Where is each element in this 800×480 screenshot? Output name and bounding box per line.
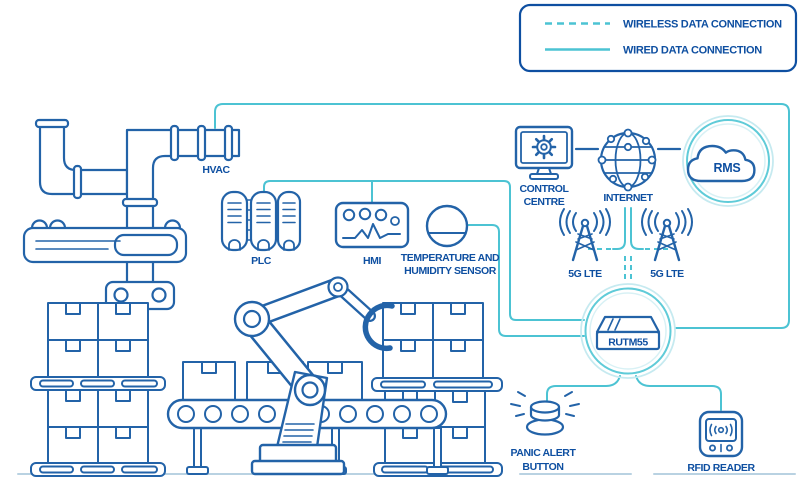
pipe-flange [171,126,178,160]
panic-button-label-2: BUTTON [522,461,563,473]
robot-elbow-joint [329,278,348,297]
temp-sensor-label-1: TEMPERATURE AND [401,252,500,264]
wire-router-to-panic-button [547,376,620,403]
hmi-label: HMI [363,255,382,267]
internet-icon: INTERNET [599,130,681,205]
pipe-cap [36,120,68,127]
wire-internet-split-right [631,208,643,249]
machine-dome [32,221,47,228]
robot-shoulder-joint [235,302,269,336]
control-centre-label-2: CENTRE [524,196,565,208]
legend: WIRELESS DATA CONNECTION WIRED DATA CONN… [520,5,796,71]
wire-internet-split-left [613,208,625,249]
button-dome [531,402,559,413]
pipe-flange [198,126,205,160]
conveyor-boxes [183,362,362,400]
lte-tower-left: 5G LTE [560,209,610,280]
pipe-flange [123,199,157,206]
hvac-pipe-elbow [40,126,127,194]
router-icon: RUTM55 [581,284,675,378]
router-top [597,317,659,332]
temp-humidity-sensor-icon: TEMPERATURE AND HUMIDITY SENSOR [401,206,500,277]
legend-wired-label: WIRED DATA CONNECTION [623,45,762,57]
legend-box [520,5,796,71]
hvac-label: HVAC [202,164,230,176]
plc-icon: PLC [222,192,300,267]
monitor-frame [516,127,572,168]
control-centre-label-1: CONTROL [519,183,569,195]
pipe-flange [225,126,232,160]
rms-icon: RMS [683,116,773,206]
robot-base-joint [295,375,325,405]
left-pallet-stack [31,303,165,476]
wire-router-to-rfid [636,376,721,410]
hmi-icon: HMI [336,203,408,267]
control-centre-icon: CONTROL CENTRE [516,127,598,208]
iot-topology-diagram: WIRELESS DATA CONNECTION WIRED DATA CONN… [0,0,800,480]
plc-label: PLC [251,255,272,267]
router-label: RUTM55 [608,337,648,349]
rfid-reader-label: RFID READER [687,462,755,474]
button-base [527,420,563,435]
robot-base-plate [252,461,344,474]
lte-left-label: 5G LTE [568,268,602,280]
internet-label: INTERNET [603,192,653,204]
machine-unit [24,221,186,309]
temp-sensor-label-2: HUMIDITY SENSOR [404,265,497,277]
panic-button-label-1: PANIC ALERT [510,447,576,459]
rms-label: RMS [714,161,741,175]
diagram-canvas: WIRELESS DATA CONNECTION WIRED DATA CONN… [0,0,800,480]
legend-wireless-label: WIRELESS DATA CONNECTION [623,19,782,31]
lte-right-label: 5G LTE [650,268,684,280]
machine-dome [50,221,65,228]
panic-button-icon: PANIC ALERT BUTTON [510,392,579,473]
machine-dome [165,221,180,228]
pipe-flange [74,166,81,198]
lte-tower-right: 5G LTE [642,209,692,280]
machine-body [24,228,186,262]
rfid-reader-icon: RFID READER [687,412,755,474]
